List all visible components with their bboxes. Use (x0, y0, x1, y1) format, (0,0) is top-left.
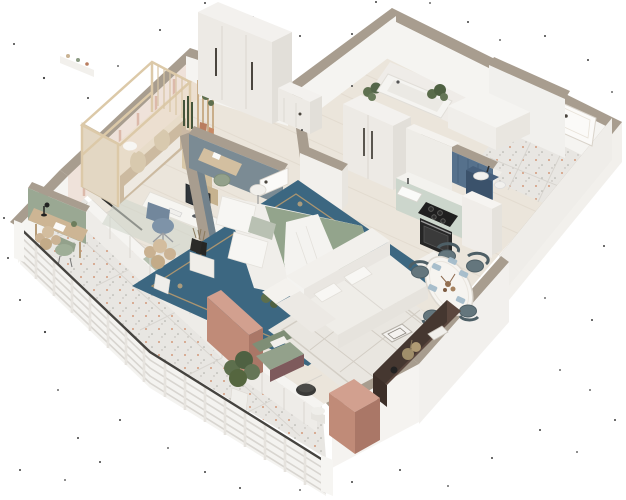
bunk-pillow (123, 142, 137, 151)
tub-faucet (396, 80, 399, 83)
toilet (495, 182, 506, 189)
bedroom-door-handle (264, 180, 267, 183)
bunk-arch-window-1 (130, 151, 146, 173)
sink-basin (474, 172, 489, 180)
desk-plant (71, 221, 77, 227)
railing-start-post (14, 220, 24, 262)
sage-pouf (214, 174, 230, 186)
apartment-isometric-svg (0, 0, 626, 500)
floor-plan-render (0, 0, 626, 500)
railing-end-post (321, 455, 333, 496)
wall-shelf (60, 54, 94, 77)
